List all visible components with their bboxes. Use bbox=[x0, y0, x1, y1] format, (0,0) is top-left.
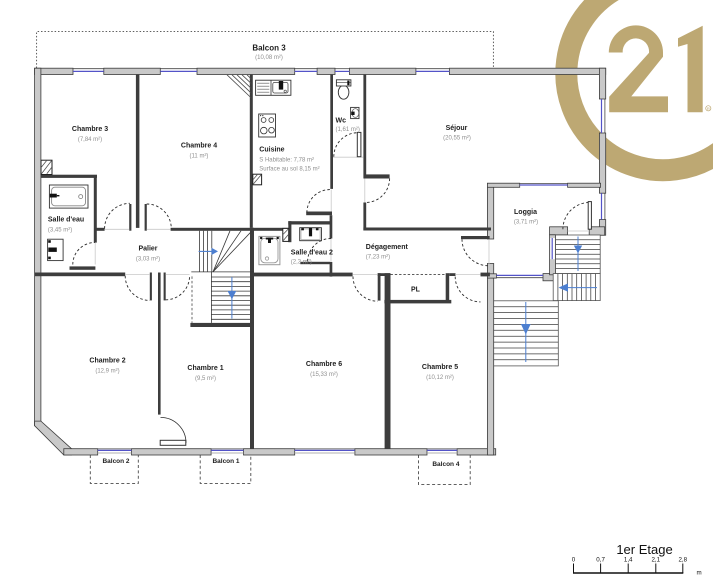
svg-text:m: m bbox=[697, 570, 702, 577]
svg-text:Surface au sol 8,15 m²: Surface au sol 8,15 m² bbox=[259, 167, 319, 173]
svg-text:Chambre 4: Chambre 4 bbox=[181, 143, 217, 150]
svg-text:2,1: 2,1 bbox=[651, 557, 660, 564]
svg-text:Salle d'eau 2: Salle d'eau 2 bbox=[291, 250, 333, 257]
svg-text:PL: PL bbox=[411, 287, 421, 294]
svg-text:Chambre 6: Chambre 6 bbox=[306, 361, 342, 368]
svg-text:Chambre 5: Chambre 5 bbox=[422, 364, 458, 371]
svg-text:Chambre 1: Chambre 1 bbox=[187, 365, 223, 372]
svg-text:(10,12 m²): (10,12 m²) bbox=[426, 375, 454, 381]
svg-text:Balcon 3: Balcon 3 bbox=[252, 44, 286, 53]
svg-text:(12,9 m²): (12,9 m²) bbox=[95, 369, 119, 375]
svg-text:(1,61 m²): (1,61 m²) bbox=[336, 127, 360, 133]
svg-text:0,7: 0,7 bbox=[596, 557, 605, 564]
svg-text:(9,5 m²): (9,5 m²) bbox=[195, 376, 216, 382]
svg-text:(7,84 m²): (7,84 m²) bbox=[78, 137, 102, 143]
svg-text:Balcon 2: Balcon 2 bbox=[102, 458, 129, 465]
svg-text:Balcon 4: Balcon 4 bbox=[432, 461, 459, 468]
svg-text:Wc: Wc bbox=[336, 118, 347, 125]
svg-text:0: 0 bbox=[572, 557, 576, 564]
svg-text:(2,3 m²): (2,3 m²) bbox=[291, 260, 312, 266]
svg-text:Balcon 1: Balcon 1 bbox=[212, 458, 239, 465]
svg-text:S Habitable: 7,78 m²: S Habitable: 7,78 m² bbox=[259, 158, 314, 164]
svg-text:1,4: 1,4 bbox=[624, 557, 633, 564]
svg-text:Palier: Palier bbox=[138, 246, 157, 253]
svg-text:(3,71 m²): (3,71 m²) bbox=[514, 220, 538, 226]
svg-text:(11 m²): (11 m²) bbox=[190, 154, 209, 160]
svg-text:R: R bbox=[707, 106, 710, 111]
svg-text:(3,45 m²): (3,45 m²) bbox=[48, 228, 72, 234]
svg-text:(20,55 m²): (20,55 m²) bbox=[443, 136, 471, 142]
svg-text:Séjour: Séjour bbox=[446, 125, 468, 132]
svg-text:(10,08 m²): (10,08 m²) bbox=[255, 55, 283, 61]
svg-text:Chambre 2: Chambre 2 bbox=[89, 358, 125, 365]
svg-text:Chambre 3: Chambre 3 bbox=[72, 126, 108, 133]
svg-text:1er Etage: 1er Etage bbox=[616, 542, 672, 557]
svg-text:Cuisine: Cuisine bbox=[259, 147, 284, 154]
svg-text:(7,23 m²): (7,23 m²) bbox=[366, 255, 390, 261]
svg-text:Loggia: Loggia bbox=[514, 209, 537, 216]
svg-text:Dégagement: Dégagement bbox=[366, 244, 409, 251]
svg-text:(3,03 m²): (3,03 m²) bbox=[136, 257, 160, 263]
svg-text:Salle d'eau: Salle d'eau bbox=[48, 217, 84, 224]
svg-text:(15,33 m²): (15,33 m²) bbox=[310, 372, 338, 378]
svg-text:2,8: 2,8 bbox=[678, 557, 687, 564]
